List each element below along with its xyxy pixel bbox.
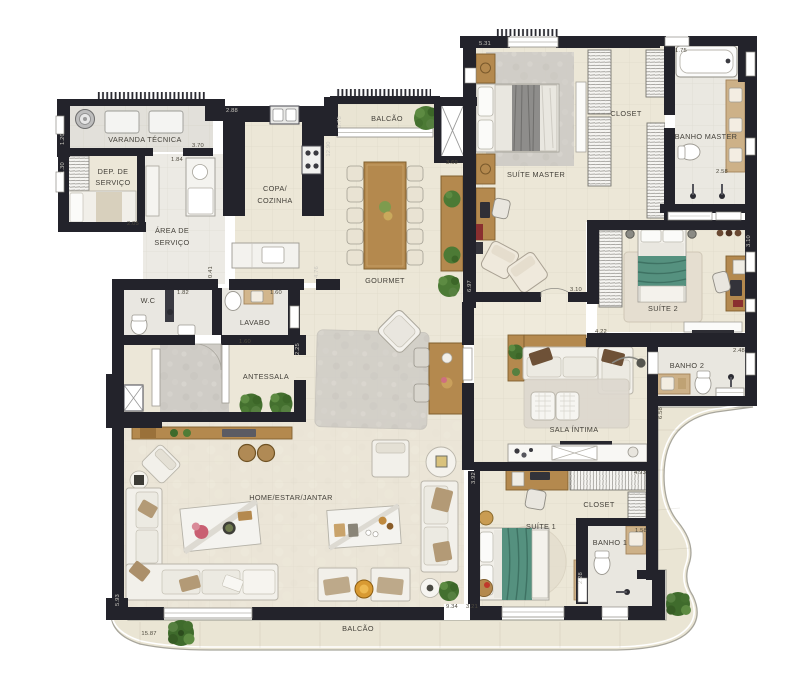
svg-text:COPA/: COPA/ [263,184,288,193]
svg-text:1.20: 1.20 [60,133,66,145]
svg-text:3.10: 3.10 [746,235,752,247]
svg-text:SUÍTE MASTER: SUÍTE MASTER [507,170,565,179]
svg-text:3.10: 3.10 [570,287,582,293]
svg-text:9.34: 9.34 [446,604,459,610]
svg-text:5.93: 5.93 [115,594,121,606]
svg-text:3.70: 3.70 [192,143,204,149]
svg-text:SALA ÍNTIMA: SALA ÍNTIMA [550,425,599,434]
svg-text:1.82: 1.82 [177,290,189,296]
svg-text:12.90: 12.90 [326,141,332,156]
svg-text:1.84: 1.84 [171,157,184,163]
svg-text:5.31: 5.31 [479,41,491,47]
svg-text:VARANDA TÉCNICA: VARANDA TÉCNICA [108,135,182,144]
svg-text:SERVIÇO: SERVIÇO [154,238,189,247]
svg-text:3.21: 3.21 [466,604,478,610]
svg-text:BALCÃO: BALCÃO [342,624,374,633]
svg-text:SUÍTE 2: SUÍTE 2 [648,304,678,313]
svg-text:1.75: 1.75 [675,48,687,54]
svg-text:2.28: 2.28 [578,572,584,584]
svg-text:ÁREA DE: ÁREA DE [155,226,189,235]
svg-text:BANHO MASTER: BANHO MASTER [675,132,738,141]
svg-text:BANHO 2: BANHO 2 [670,361,704,370]
svg-text:0.75: 0.75 [337,116,343,128]
svg-text:COZINHA: COZINHA [257,196,292,205]
svg-text:15.87: 15.87 [141,631,156,637]
svg-text:LAVABO: LAVABO [240,318,270,327]
svg-text:HOME/ESTAR/JANTAR: HOME/ESTAR/JANTAR [249,493,333,502]
svg-text:4.22: 4.22 [595,329,607,335]
svg-text:4.93: 4.93 [634,470,646,476]
svg-text:ANTESSALA: ANTESSALA [243,372,289,381]
svg-text:CLOSET: CLOSET [583,500,614,509]
svg-text:2.05: 2.05 [127,221,139,227]
svg-text:BANHO 1: BANHO 1 [593,538,627,547]
svg-text:1.58: 1.58 [635,528,647,534]
svg-text:6.58: 6.58 [658,407,664,419]
svg-text:GOURMET: GOURMET [365,276,405,285]
svg-text:SERVIÇO: SERVIÇO [95,178,130,187]
svg-text:BALCÃO: BALCÃO [371,114,403,123]
svg-text:1.30: 1.30 [60,162,66,174]
svg-text:SUÍTE 1: SUÍTE 1 [526,522,556,531]
svg-text:2.25: 2.25 [295,343,301,355]
svg-text:3.69: 3.69 [446,160,458,166]
svg-text:1.60: 1.60 [270,290,282,296]
svg-text:4.76: 4.76 [314,266,320,278]
svg-text:DEP. DE: DEP. DE [98,167,129,176]
svg-text:0.41: 0.41 [208,266,214,278]
svg-text:3.92: 3.92 [471,472,477,484]
svg-text:2.58: 2.58 [716,169,728,175]
svg-text:2.48: 2.48 [733,348,745,354]
svg-text:2.88: 2.88 [226,108,238,114]
svg-text:1.60: 1.60 [239,339,251,345]
svg-text:6.97: 6.97 [467,280,473,292]
svg-text:W.C: W.C [141,296,156,305]
svg-text:CLOSET: CLOSET [610,109,641,118]
